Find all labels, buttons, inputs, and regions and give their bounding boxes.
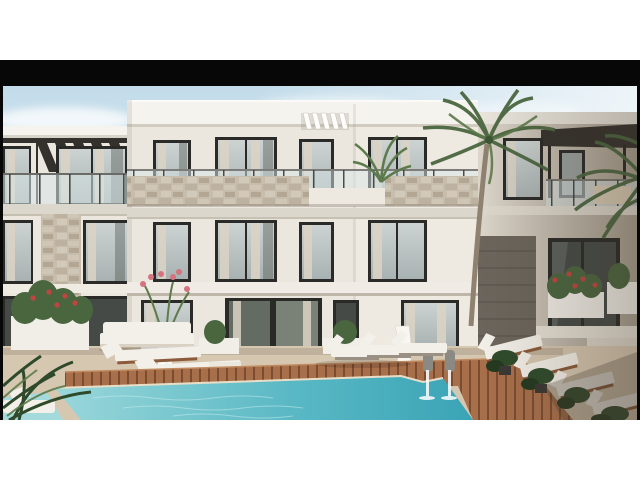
building-center — [127, 100, 478, 355]
stone-parapet — [127, 176, 309, 206]
floor-slab — [3, 204, 130, 214]
stone-parapet — [385, 176, 478, 206]
roof-fascia-left — [3, 126, 130, 135]
page-background — [0, 0, 640, 480]
photo-letterbox-frame — [0, 60, 640, 420]
railing-glass — [3, 174, 130, 204]
architectural-render — [3, 86, 637, 420]
shade-overlay — [478, 112, 637, 420]
roof-louver-fins-icon — [301, 113, 349, 130]
floor-slab — [127, 208, 478, 217]
